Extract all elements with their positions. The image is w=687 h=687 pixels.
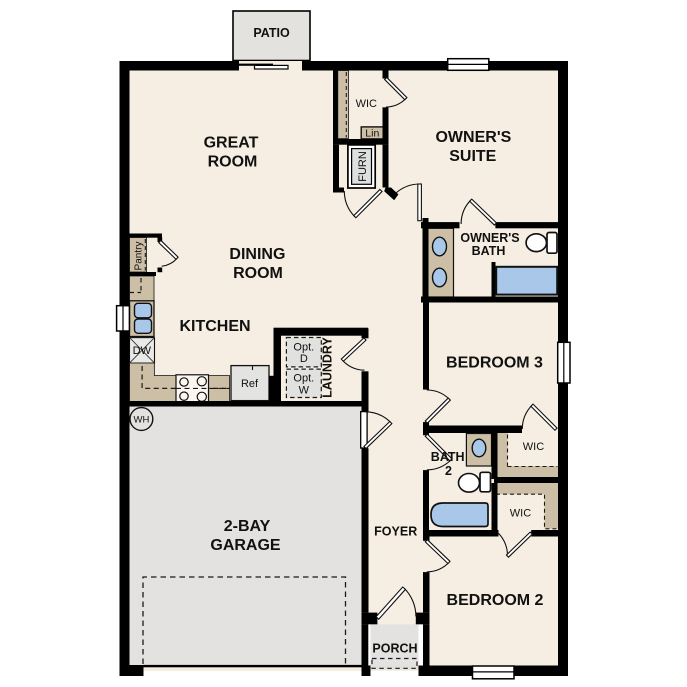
svg-text:WIC: WIC xyxy=(510,507,531,519)
svg-text:SUITE: SUITE xyxy=(449,148,496,165)
svg-text:PORCH: PORCH xyxy=(372,642,417,656)
svg-text:BEDROOM 2: BEDROOM 2 xyxy=(447,592,544,609)
svg-text:DW: DW xyxy=(133,345,152,357)
svg-text:LAUNDRY: LAUNDRY xyxy=(321,337,335,398)
svg-text:D: D xyxy=(300,353,308,365)
svg-text:PATIO: PATIO xyxy=(253,26,290,40)
svg-text:GARAGE: GARAGE xyxy=(210,537,281,554)
svg-text:Opt.: Opt. xyxy=(293,341,314,353)
svg-text:OWNER'S: OWNER'S xyxy=(460,231,519,245)
svg-text:W: W xyxy=(299,384,310,396)
svg-text:2-BAY: 2-BAY xyxy=(224,518,271,535)
svg-text:Lin: Lin xyxy=(365,128,379,140)
svg-text:ROOM: ROOM xyxy=(208,154,258,171)
svg-text:DINING: DINING xyxy=(229,246,285,263)
svg-text:WIC: WIC xyxy=(356,98,377,110)
svg-text:ROOM: ROOM xyxy=(233,265,283,282)
svg-text:BATH: BATH xyxy=(431,450,465,464)
svg-text:FOYER: FOYER xyxy=(374,525,417,539)
svg-text:BATH: BATH xyxy=(472,244,506,258)
svg-text:2: 2 xyxy=(445,464,452,478)
svg-text:KITCHEN: KITCHEN xyxy=(179,318,250,335)
svg-text:Ref: Ref xyxy=(241,378,259,390)
svg-text:OWNER'S: OWNER'S xyxy=(435,129,511,146)
svg-text:GREAT: GREAT xyxy=(204,134,259,151)
svg-text:WH: WH xyxy=(133,415,149,426)
svg-text:Opt.: Opt. xyxy=(293,373,314,385)
svg-text:WIC: WIC xyxy=(523,441,544,453)
svg-text:FURN: FURN xyxy=(357,151,369,182)
svg-text:BEDROOM 3: BEDROOM 3 xyxy=(446,354,543,371)
svg-text:Pantry: Pantry xyxy=(133,242,144,271)
